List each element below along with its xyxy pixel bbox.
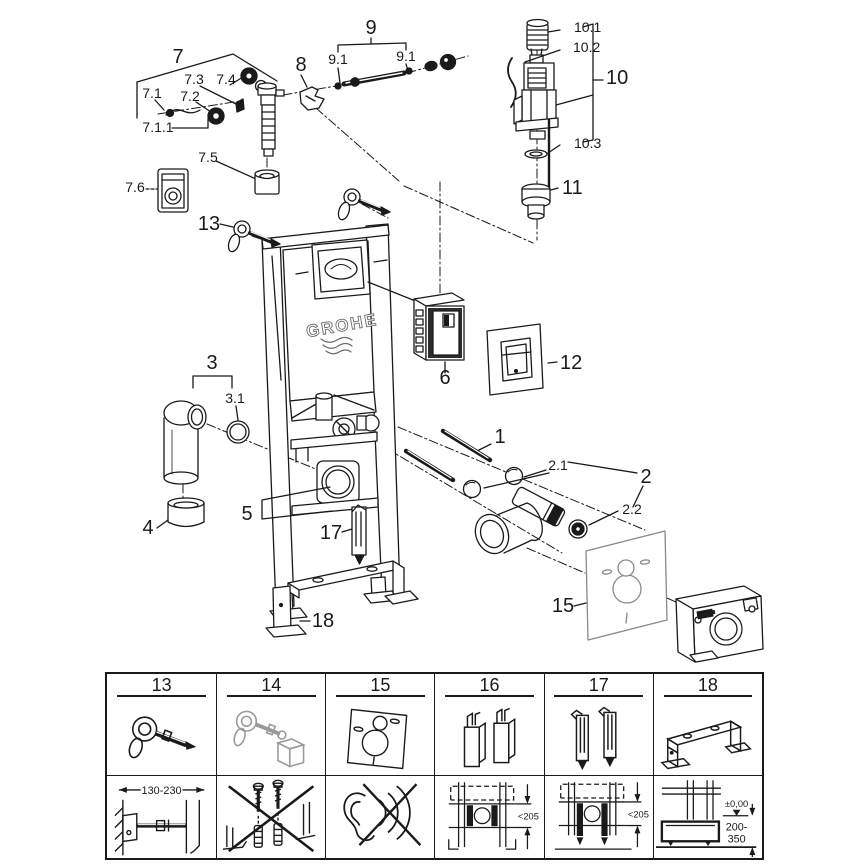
callout-7: 7	[172, 46, 183, 68]
frame-extension-diagram: <205	[545, 775, 653, 859]
header-rule	[117, 695, 207, 697]
dim-130-230: 130-230	[142, 785, 182, 797]
spec-col-15: 15	[325, 674, 434, 859]
spec-col-15-header: 15	[326, 674, 434, 701]
installation-frame: GROHE	[262, 224, 400, 620]
callout-10: 10	[606, 67, 628, 89]
connection-set-group	[406, 431, 643, 559]
callout-6: 6	[439, 367, 450, 389]
wall-distance-diagram: 130-230	[107, 775, 216, 859]
dim-205-16: <205	[518, 812, 539, 822]
spec-col-17-header: 17	[545, 674, 653, 701]
spec-col-16-number: 16	[480, 676, 500, 694]
wc-adapter: GROHE	[676, 586, 763, 662]
header-rule	[664, 695, 753, 697]
actuation-rod-9	[335, 38, 456, 89]
callout-2-1: 2.1	[548, 457, 568, 473]
callout-7-1: 7.1	[142, 85, 162, 101]
callout-2: 2	[640, 466, 651, 488]
spec-col-17-number: 17	[589, 676, 609, 694]
floor-height-diagram: ±0,00 200- 350	[654, 775, 762, 859]
no-screws-icon	[217, 775, 325, 859]
rod-bracket-8	[300, 75, 324, 110]
spec-col-18-number: 18	[698, 676, 718, 694]
spec-col-13-number: 13	[152, 676, 172, 694]
callout-9: 9	[365, 17, 376, 39]
callout-7-3: 7.3	[184, 71, 204, 87]
callout-7-1-1: 7.1.1	[142, 119, 173, 135]
anchor-with-bracket-icon	[217, 701, 325, 775]
header-rule	[336, 695, 425, 697]
exploded-parts-page: GROHE	[0, 0, 868, 868]
spec-col-14-header: 14	[217, 674, 325, 701]
callout-4: 4	[142, 517, 153, 539]
callout-2-2: 2.2	[622, 501, 642, 517]
frame-depth-diagram: <205	[435, 775, 543, 859]
callout-10-3: 10.3	[574, 135, 601, 151]
installation-specs-table: 13 130-230	[105, 672, 764, 860]
callout-15: 15	[552, 595, 574, 617]
callout-8: 8	[295, 54, 306, 76]
callout-7-5: 7.5	[198, 149, 218, 165]
spec-col-13: 13 130-230	[107, 674, 216, 859]
dim-level: ±0,00	[725, 799, 748, 809]
callout-13: 13	[198, 213, 220, 235]
spec-col-14: 14	[216, 674, 325, 859]
callout-18: 18	[312, 610, 334, 632]
callout-9-1a: 9.1	[328, 51, 348, 67]
callout-1: 1	[494, 426, 505, 448]
callout-3: 3	[206, 352, 217, 374]
sound-mat-15	[574, 531, 667, 640]
callout-10-1: 10.1	[574, 19, 601, 35]
no-noise-icon	[326, 775, 434, 859]
callout-3-1: 3.1	[225, 390, 245, 406]
callout-5: 5	[241, 503, 252, 525]
dim-range-1: 200-	[726, 821, 748, 833]
spec-col-15-number: 15	[370, 676, 390, 694]
spec-col-16: 16 <205	[434, 674, 543, 859]
floor-bracket-icon	[654, 701, 762, 775]
dim-range-2: 350	[727, 833, 745, 845]
wall-anchor-icon	[107, 701, 216, 775]
spec-col-16-header: 16	[435, 674, 543, 701]
callout-12: 12	[560, 352, 582, 374]
callout-17: 17	[320, 522, 342, 544]
dim-205-17: <205	[628, 810, 649, 820]
exploded-diagram: GROHE	[0, 0, 868, 672]
header-rule	[227, 695, 316, 697]
callout-7-2: 7.2	[180, 88, 200, 104]
support-feet-icon	[435, 701, 543, 775]
spec-col-14-number: 14	[261, 676, 281, 694]
header-rule	[445, 695, 534, 697]
callout-9-1b: 9.1	[396, 48, 416, 64]
extension-17	[342, 505, 366, 564]
spec-col-13-header: 13	[107, 674, 216, 701]
callout-10-2: 10.2	[573, 39, 600, 55]
sound-mat-icon	[326, 701, 434, 775]
flush-plate-12	[487, 324, 557, 395]
spec-col-17: 17	[544, 674, 653, 859]
callout-7-4: 7.4	[216, 71, 236, 87]
spec-col-18-header: 18	[654, 674, 762, 701]
spec-col-18: 18	[653, 674, 762, 859]
extension-plates-icon	[545, 701, 653, 775]
callout-7-6: 7.6	[125, 179, 145, 195]
header-rule	[554, 695, 643, 697]
callout-11: 11	[562, 177, 583, 199]
